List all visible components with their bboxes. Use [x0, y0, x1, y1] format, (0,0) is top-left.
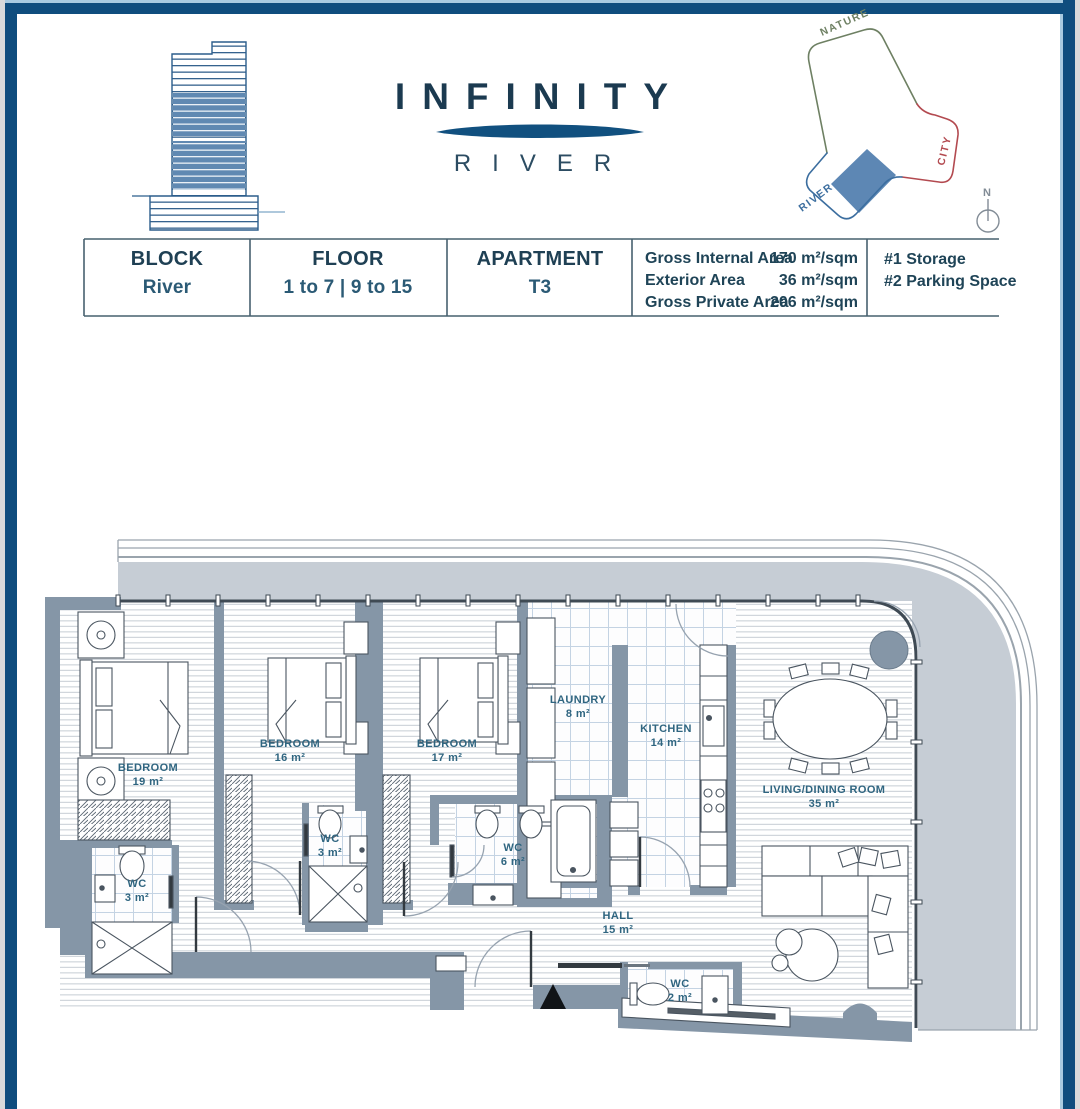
- floorplan-page: NATURE CITY RIVER N: [0, 0, 1080, 1109]
- floor-value: 1 to 7 | 9 to 15: [284, 277, 413, 299]
- wardrobe-2: [226, 775, 252, 903]
- room-label-wc-small: WC2 m²: [668, 978, 692, 1005]
- room-label-wc1: WC3 m²: [125, 878, 149, 905]
- column: [870, 631, 908, 669]
- room-label-bedroom-3: BEDROOM17 m²: [417, 738, 477, 765]
- nature-label: NATURE: [818, 6, 871, 38]
- room-label-hall: HALL15 m²: [603, 910, 634, 937]
- area-row-value: 36 m²/sqm: [763, 272, 858, 290]
- room-label-living: LIVING/DINING ROOM35 m²: [763, 784, 886, 811]
- brand-swoosh: [436, 125, 644, 139]
- floor-header: FLOOR: [312, 248, 384, 271]
- city-label: CITY: [935, 134, 954, 166]
- room-label-bedroom-1: BEDROOM19 m²: [118, 762, 178, 789]
- room-label-wc6: WC6 m²: [501, 842, 525, 869]
- block-value: River: [143, 277, 192, 299]
- room-label-bedroom-2: BEDROOM16 m²: [260, 738, 320, 765]
- apartment-header: APARTMENT: [477, 248, 604, 271]
- wardrobe-1: [78, 800, 170, 840]
- room-label-kitchen: KITCHEN14 m²: [640, 723, 692, 750]
- apartment-value: T3: [529, 277, 552, 299]
- brand-subtitle: RIVER: [454, 150, 632, 178]
- extra-storage: #1 Storage: [884, 251, 966, 269]
- orientation-diagram: NATURE CITY RIVER: [797, 6, 958, 218]
- compass-icon: N: [977, 187, 999, 232]
- hall-shoe-cabinet: [436, 956, 466, 971]
- river-label: RIVER: [797, 181, 836, 215]
- floor-plan: [45, 540, 1037, 1042]
- compass-n: N: [983, 187, 991, 199]
- extra-parking: #2 Parking Space: [884, 273, 1017, 291]
- block-header: BLOCK: [131, 248, 204, 271]
- room-label-laundry: LAUNDRY8 m²: [550, 694, 606, 721]
- brand-building-icon: [132, 42, 285, 230]
- brand-title: INFINITY: [395, 76, 685, 118]
- hall-cabinets: [610, 802, 638, 886]
- room-label-wc2: WC3 m²: [318, 833, 342, 860]
- area-row-value: 170 m²/sqm: [763, 250, 858, 268]
- area-row-value: 206 m²/sqm: [763, 294, 858, 312]
- nature-side-outline: [808, 29, 917, 153]
- wardrobe-3: [383, 775, 410, 903]
- kitchen-counter: [700, 645, 727, 887]
